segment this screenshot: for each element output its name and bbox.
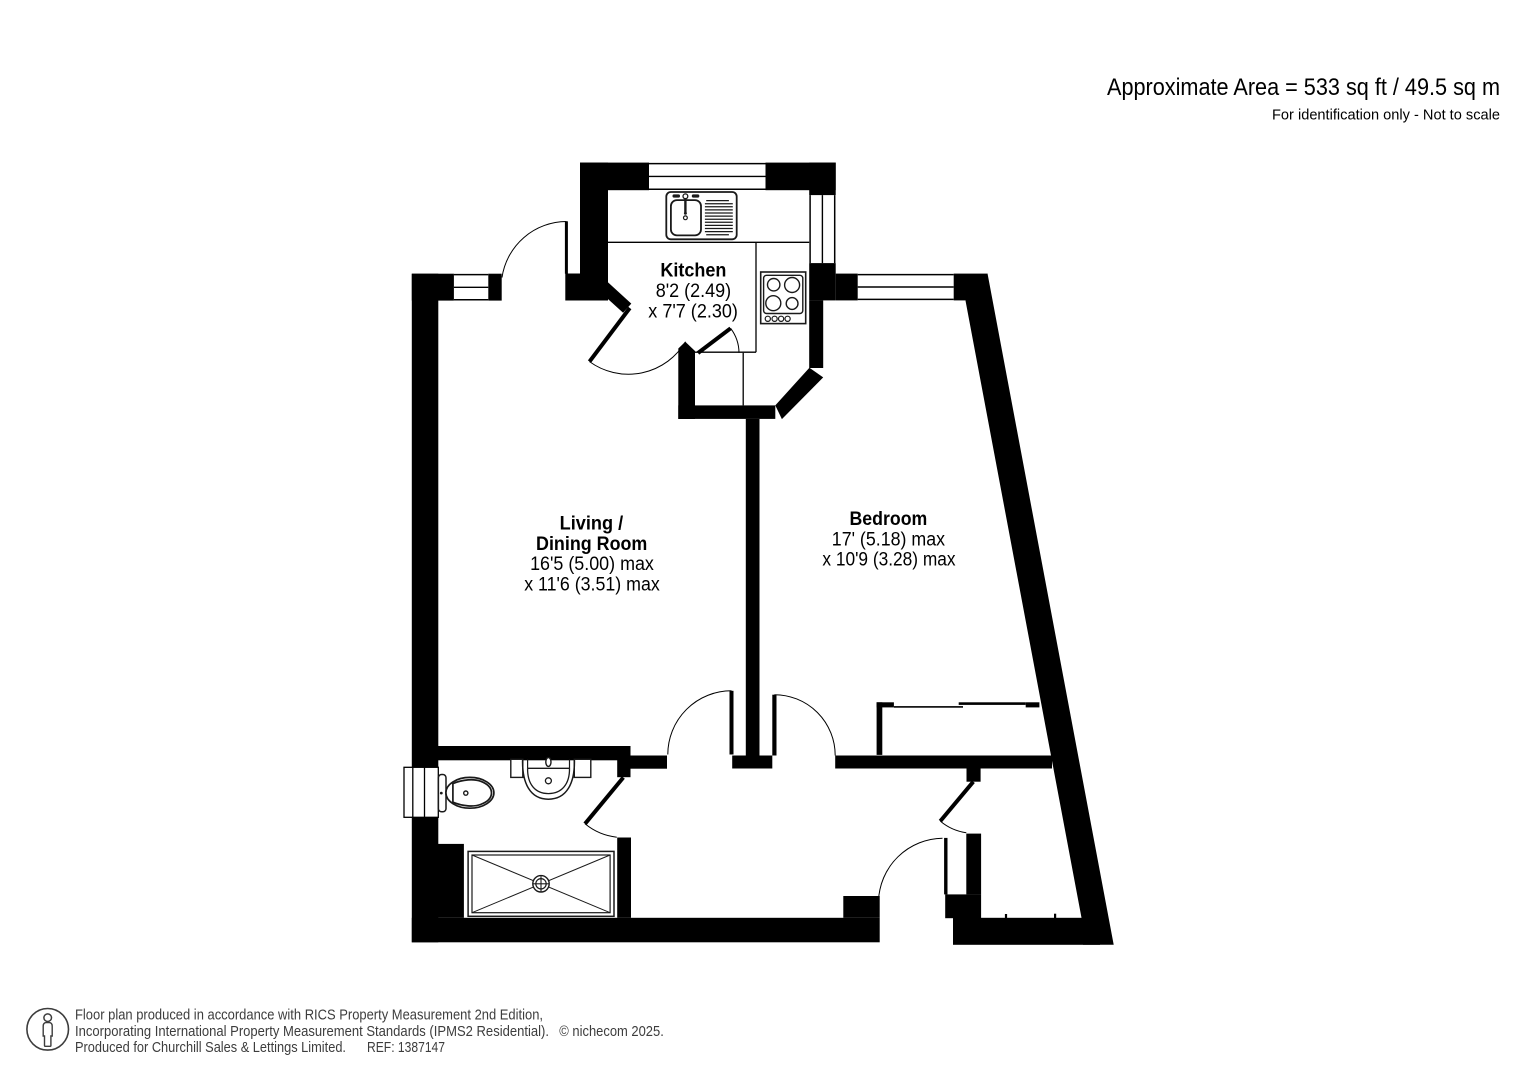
svg-text:© nichecom 2025.: © nichecom 2025. <box>559 1023 664 1040</box>
svg-text:REF: 1387147: REF: 1387147 <box>367 1039 445 1056</box>
svg-text:Bedroom: Bedroom <box>850 508 928 530</box>
svg-text:x 11'6 (3.51) max: x 11'6 (3.51) max <box>524 573 660 595</box>
svg-text:Dining Room: Dining Room <box>536 533 647 555</box>
svg-text:Living /: Living / <box>560 513 624 535</box>
svg-text:8'2 (2.49): 8'2 (2.49) <box>656 280 731 302</box>
svg-text:For identification only - Not: For identification only - Not to scale <box>1272 107 1500 124</box>
svg-text:x 7'7 (2.30): x 7'7 (2.30) <box>648 301 738 323</box>
svg-text:Produced for Churchill Sales &: Produced for Churchill Sales & Lettings … <box>75 1039 346 1056</box>
svg-text:Approximate Area = 533 sq ft /: Approximate Area = 533 sq ft / 49.5 sq m <box>1107 74 1500 101</box>
svg-text:Kitchen: Kitchen <box>660 260 726 282</box>
svg-text:17' (5.18) max: 17' (5.18) max <box>832 528 945 550</box>
svg-text:16'5 (5.00) max: 16'5 (5.00) max <box>530 553 654 575</box>
svg-text:x 10'9 (3.28) max: x 10'9 (3.28) max <box>822 549 955 571</box>
svg-text:Incorporating International Pr: Incorporating International Property Mea… <box>75 1023 549 1040</box>
svg-text:Floor plan produced in accorda: Floor plan produced in accordance with R… <box>75 1007 543 1024</box>
